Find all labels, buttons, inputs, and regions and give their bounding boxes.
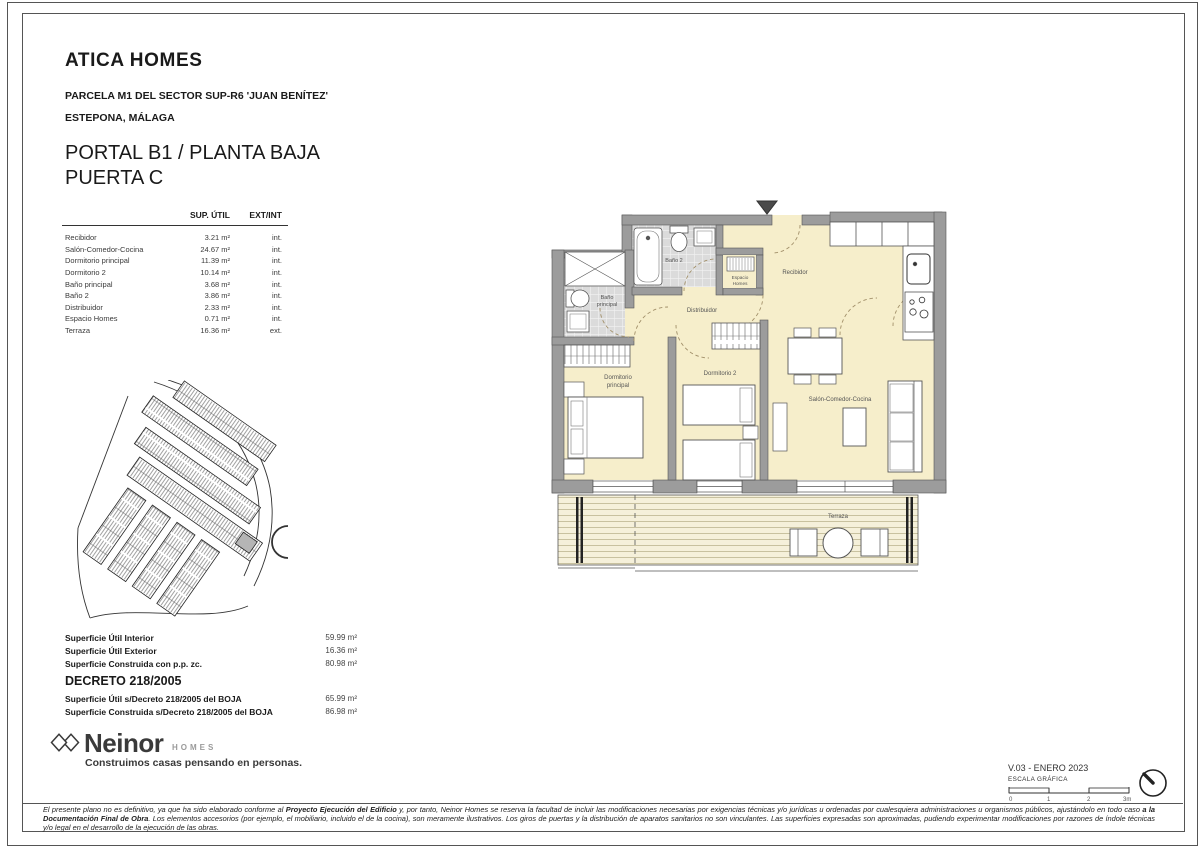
terrace-chair	[861, 529, 888, 556]
label-dorm2: Dormitorio 2	[704, 371, 737, 377]
brand-name: Neinor	[84, 728, 163, 759]
table-row: Baño principal3.68 m²int.	[62, 278, 288, 290]
site-location-plan	[76, 380, 304, 620]
decreto-row: Superficie Útil s/Decreto 218/2005 del B…	[65, 692, 357, 705]
surface-summary: Superficie Útil Interior59.99 m² Superfi…	[65, 631, 357, 670]
kitchen-sink	[907, 254, 930, 284]
scale-label: ESCALA GRÁFICA	[1008, 776, 1068, 783]
label-espacio-1: Espacio	[732, 275, 749, 280]
table-row: Baño 23.86 m²int.	[62, 290, 288, 302]
chair	[794, 328, 811, 337]
project-title: ATICA HOMES	[65, 50, 203, 72]
table-row: Distribuidor2.33 m²int.	[62, 302, 288, 314]
areas-table-header: SUP. ÚTIL EXT/INT	[62, 210, 288, 226]
col-header-sup-util: SUP. ÚTIL	[158, 210, 230, 220]
label-bano-ppal-1: Baño	[601, 295, 614, 301]
areas-table: SUP. ÚTIL EXT/INT Recibidor3.21 m²int. S…	[62, 210, 288, 336]
nightstand	[743, 426, 758, 439]
table-row: Dormitorio 210.14 m²int.	[62, 267, 288, 279]
label-dorm-ppal-1: Dormitorio	[604, 375, 632, 381]
label-recibidor: Recibidor	[782, 270, 807, 276]
coffee-table	[843, 408, 866, 446]
brand-suffix: HOMES	[172, 743, 216, 752]
scale-tick-2: 2	[1087, 797, 1091, 802]
label-distribuidor: Distribuidor	[687, 308, 717, 314]
north-compass-icon	[1136, 766, 1170, 800]
col-header-ext-int: EXT/INT	[230, 210, 288, 220]
chair	[819, 328, 836, 337]
legal-disclaimer: El presente plano no es definitivo, ya q…	[43, 806, 1155, 833]
summary-row: Superficie Construida con p.p. zc.80.98 …	[65, 657, 357, 670]
city-subtitle: ESTEPONA, MÁLAGA	[65, 112, 175, 124]
chair	[794, 375, 811, 384]
unit-title-line1: PORTAL B1 / PLANTA BAJA	[65, 141, 320, 166]
decreto-title: DECRETO 218/2005	[65, 674, 182, 688]
summary-row: Superficie Útil Exterior16.36 m²	[65, 644, 357, 657]
decreto-row: Superficie Construida s/Decreto 218/2005…	[65, 705, 357, 718]
floor-plan: Recibidor Distribuidor Baño 2 Baño princ…	[550, 198, 955, 583]
label-terraza: Terraza	[828, 514, 849, 520]
table-row: Terraza16.36 m²ext.	[62, 325, 288, 337]
table-row: Dormitorio principal11.39 m²int.	[62, 255, 288, 267]
cooktop	[905, 292, 933, 332]
graphic-scale-bar: 0 1 2 3m	[1008, 784, 1138, 802]
scale-tick-1: 1	[1047, 797, 1051, 802]
label-salon: Salón-Comedor-Cocina	[809, 397, 872, 403]
parcel-subtitle: PARCELA M1 DEL SECTOR SUP-R6 'JUAN BENÍT…	[65, 90, 328, 102]
footer-divider-line	[23, 803, 1183, 804]
label-espacio-2: Homes	[733, 281, 749, 286]
site-buildings	[76, 380, 304, 620]
plan-sheet: ATICA HOMES PARCELA M1 DEL SECTOR SUP-R6…	[0, 0, 1200, 848]
unit-title: PORTAL B1 / PLANTA BAJA PUERTA C	[65, 141, 320, 191]
terrace	[558, 495, 918, 571]
decreto-summary: Superficie Útil s/Decreto 218/2005 del B…	[65, 692, 357, 718]
nightstand	[564, 459, 584, 474]
tv-unit	[773, 403, 787, 451]
table-row: Salón-Comedor-Cocina24.67 m²int.	[62, 244, 288, 256]
chair	[819, 375, 836, 384]
version-label: V.03 - ENERO 2023	[1008, 763, 1088, 773]
terrace-chair	[790, 529, 817, 556]
toilet	[571, 290, 589, 307]
neinor-logo-icon	[50, 729, 80, 756]
brand-tagline: Construimos casas pensando en personas.	[85, 757, 302, 769]
nightstand	[564, 382, 584, 397]
dining-table	[788, 338, 842, 374]
entrance-arrow-icon	[757, 201, 777, 214]
table-row: Espacio Homes0.71 m²int.	[62, 313, 288, 325]
label-bano-ppal-2: principal	[597, 302, 617, 308]
terrace-table	[823, 528, 853, 558]
table-row: Recibidor3.21 m²int.	[62, 232, 288, 244]
label-dorm-ppal-2: principal	[607, 383, 629, 389]
label-bano2: Baño 2	[665, 258, 682, 264]
unit-title-line2: PUERTA C	[65, 166, 320, 191]
scale-tick-3m: 3m	[1123, 797, 1131, 802]
toilet	[671, 233, 687, 252]
summary-row: Superficie Útil Interior59.99 m²	[65, 631, 357, 644]
scale-tick-0: 0	[1009, 797, 1013, 802]
toilet-tank	[670, 226, 688, 233]
